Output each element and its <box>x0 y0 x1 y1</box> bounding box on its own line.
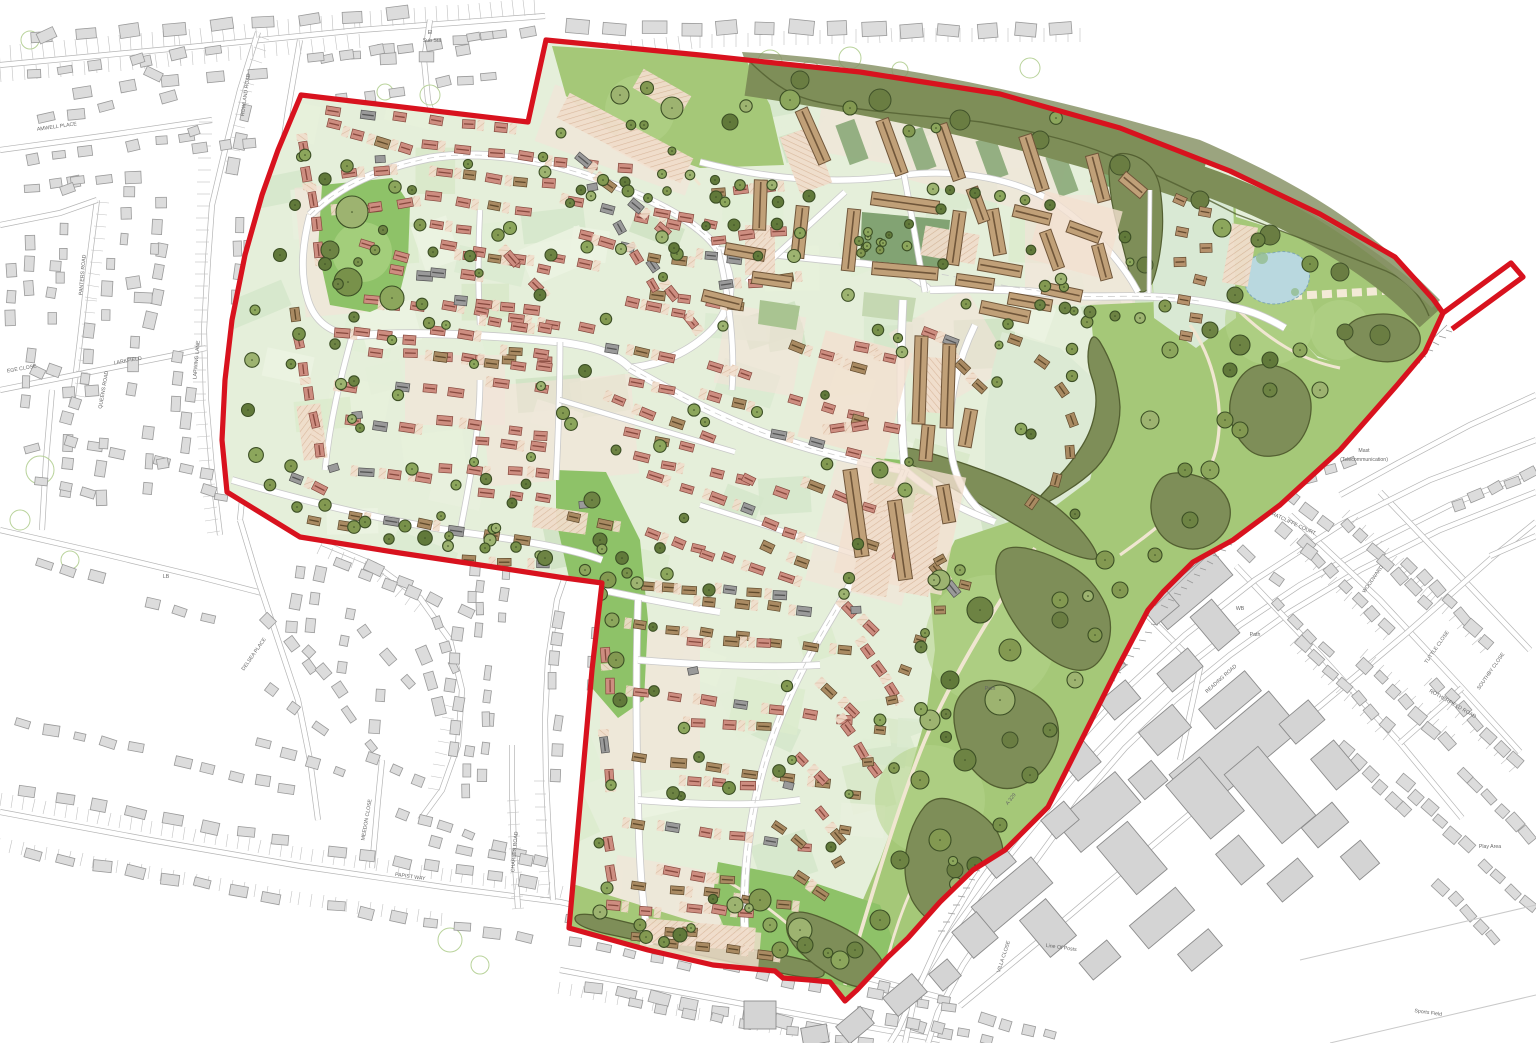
svg-text:(Telecommunication): (Telecommunication) <box>1340 457 1388 463</box>
svg-text:Mast: Mast <box>1358 448 1370 454</box>
svg-text:LB: LB <box>163 574 170 580</box>
svg-text:WB: WB <box>1236 606 1245 612</box>
svg-text:El: El <box>428 30 433 36</box>
svg-text:Path: Path <box>985 686 996 692</box>
svg-text:Path: Path <box>1250 632 1261 638</box>
svg-text:': ' <box>730 964 731 970</box>
svg-text:Play Area: Play Area <box>1479 844 1501 850</box>
svg-text:Sub Sta: Sub Sta <box>423 38 442 44</box>
